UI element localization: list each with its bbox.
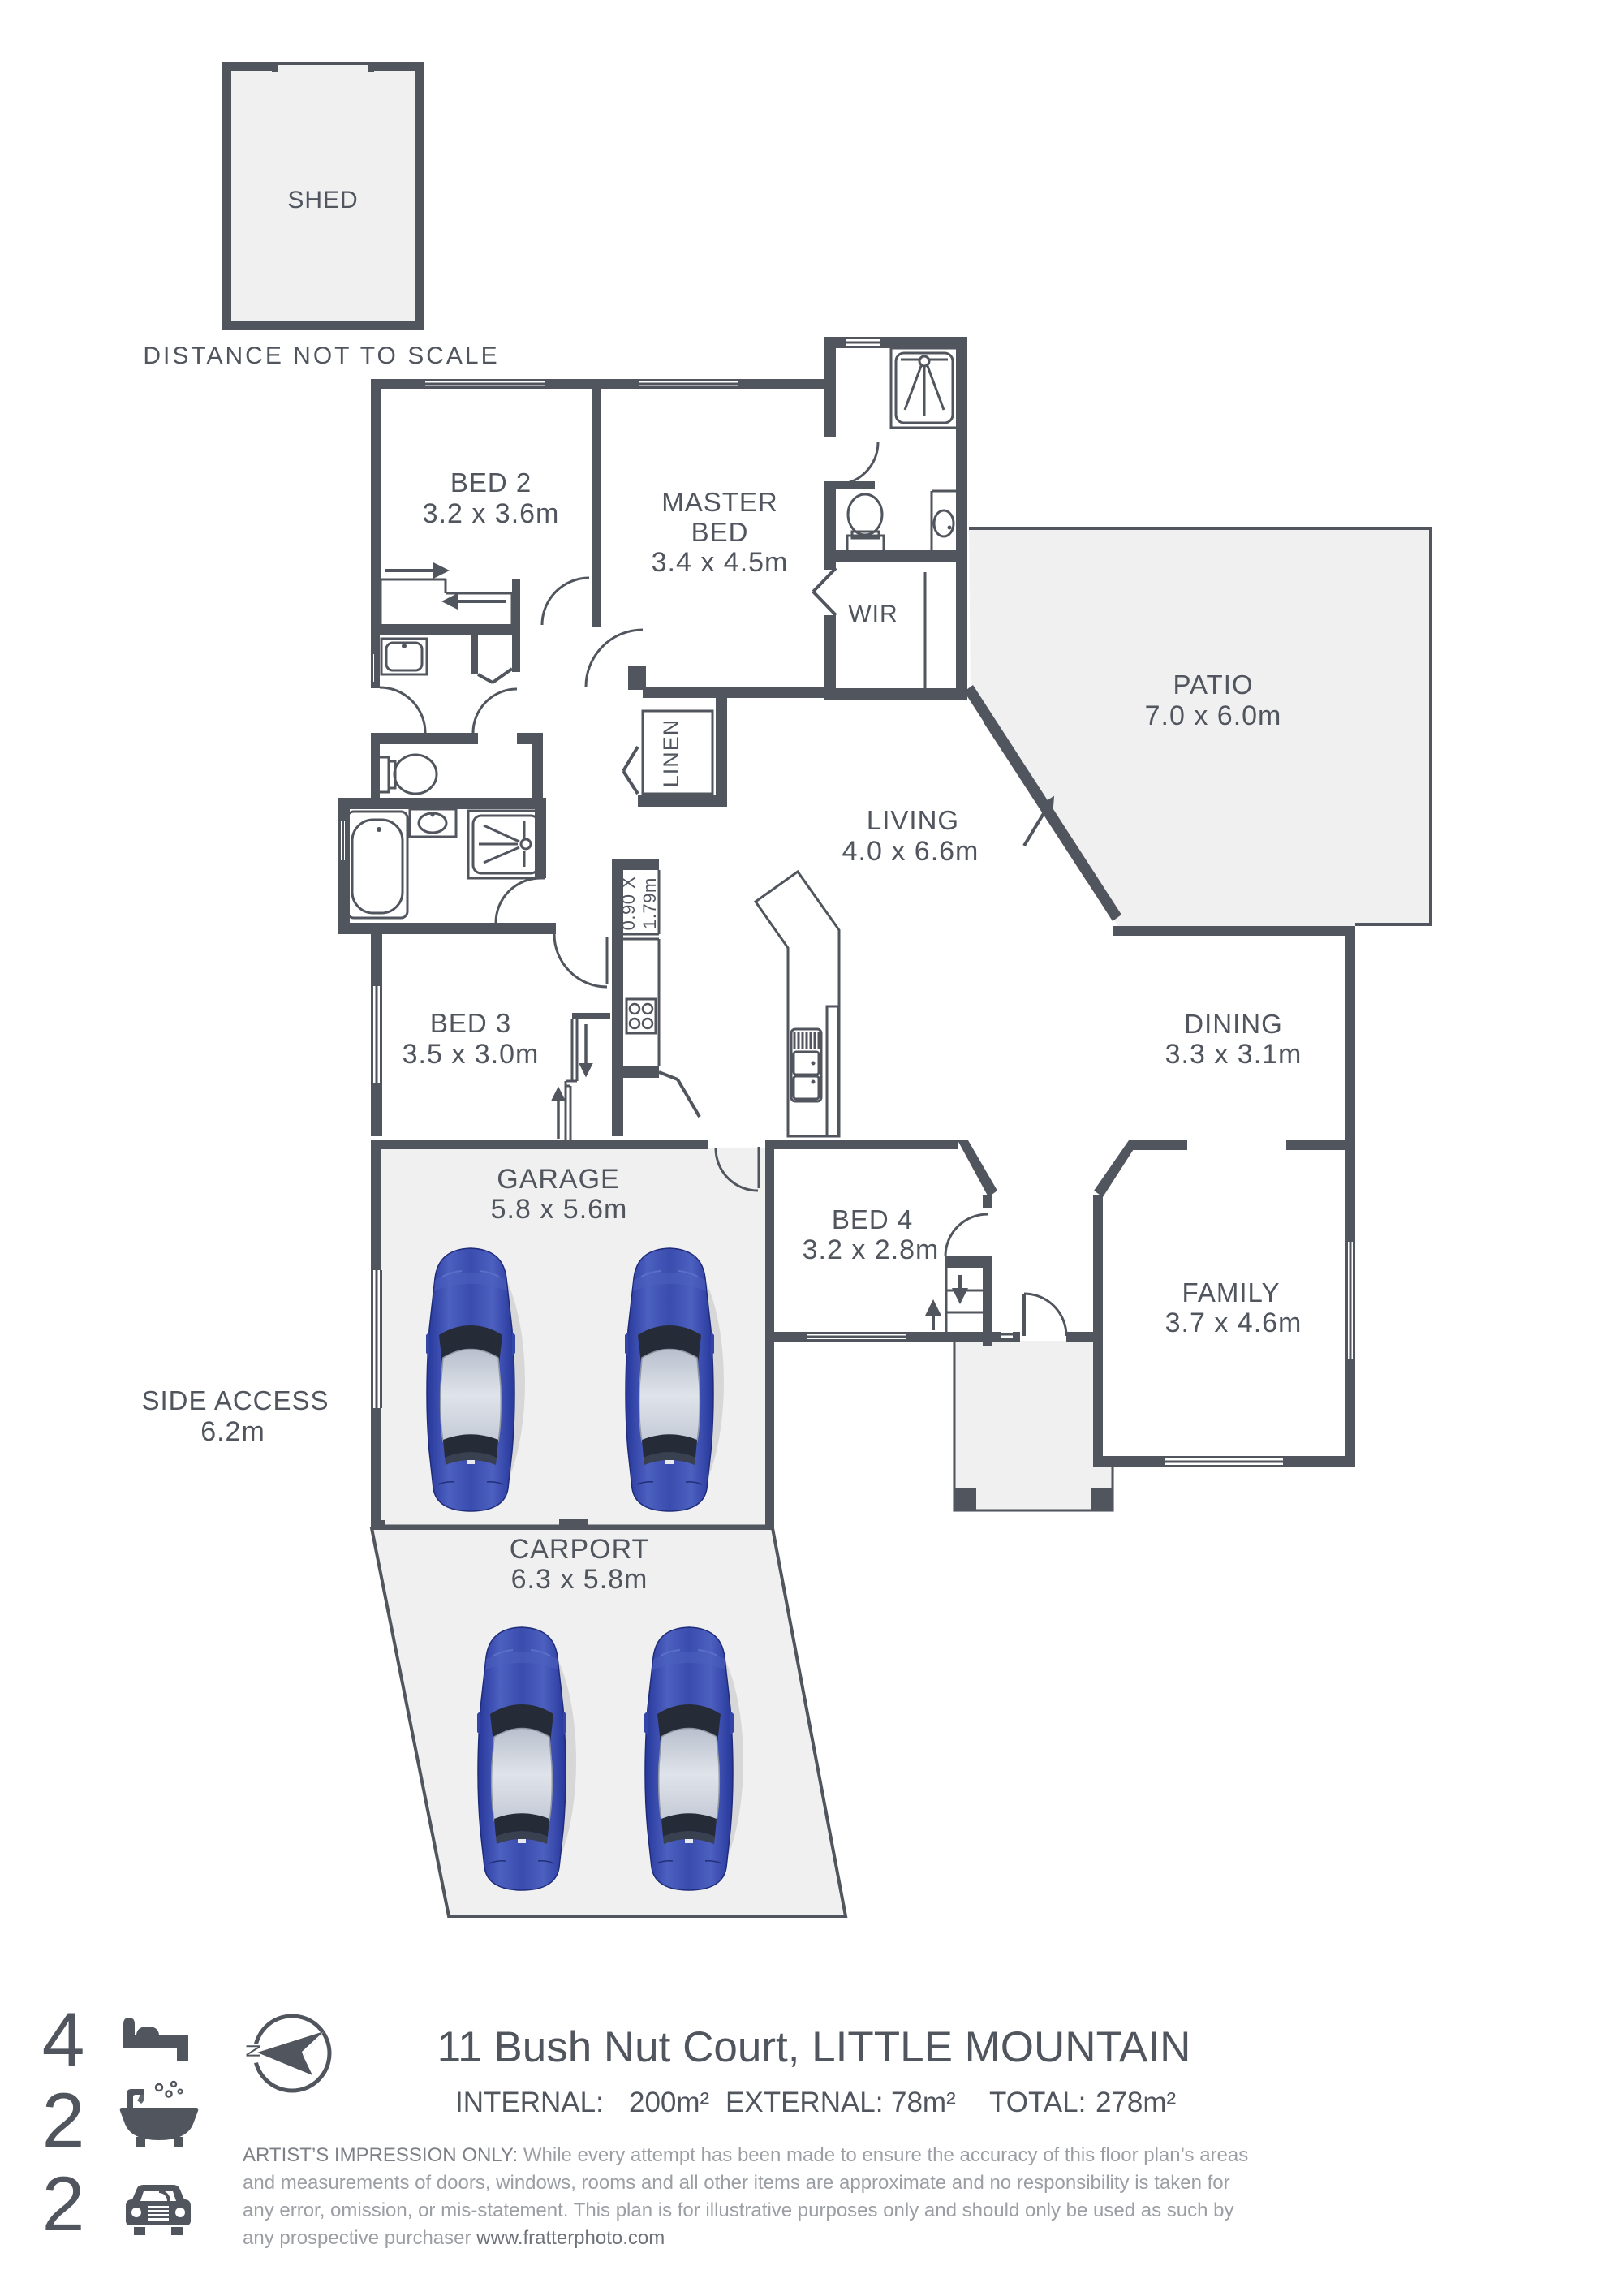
svg-text:SHED: SHED bbox=[287, 187, 358, 213]
svg-text:4: 4 bbox=[42, 1997, 85, 2083]
svg-text:DINING: DINING bbox=[1184, 1009, 1283, 1039]
svg-text:3.2 x 2.8m: 3.2 x 2.8m bbox=[803, 1234, 940, 1265]
svg-text:6.2m: 6.2m bbox=[200, 1416, 265, 1447]
svg-text:3.5 x 3.0m: 3.5 x 3.0m bbox=[403, 1039, 540, 1070]
svg-text:0.90 X: 0.90 X bbox=[618, 877, 639, 931]
svg-text:6.3 x 5.8m: 6.3 x 5.8m bbox=[511, 1564, 648, 1595]
svg-text:BED 3: BED 3 bbox=[430, 1008, 511, 1038]
svg-text:CARPORT: CARPORT bbox=[510, 1534, 650, 1565]
svg-text:7.0 x 6.0m: 7.0 x 6.0m bbox=[1145, 700, 1282, 731]
svg-text:BED 2: BED 2 bbox=[450, 467, 532, 498]
svg-text:MASTER: MASTER bbox=[661, 487, 778, 517]
svg-text:LINEN: LINEN bbox=[659, 719, 683, 788]
svg-text:FAMILY: FAMILY bbox=[1182, 1277, 1281, 1307]
svg-text:278m²: 278m² bbox=[1096, 2087, 1176, 2118]
svg-text:EXTERNAL:: EXTERNAL: bbox=[725, 2087, 884, 2118]
svg-text:11 Bush Nut Court, LITTLE MOUN: 11 Bush Nut Court, LITTLE MOUNTAIN bbox=[437, 2023, 1191, 2071]
svg-text:3.4 x 4.5m: 3.4 x 4.5m bbox=[652, 547, 789, 578]
svg-text:GARAGE: GARAGE bbox=[497, 1164, 619, 1195]
svg-text:PATIO: PATIO bbox=[1173, 670, 1253, 700]
svg-text:and measurements of doors, win: and measurements of doors, windows, room… bbox=[243, 2172, 1230, 2194]
svg-text:WIR: WIR bbox=[848, 601, 898, 627]
svg-text:78m²: 78m² bbox=[891, 2087, 956, 2118]
svg-text:TOTAL:: TOTAL: bbox=[989, 2087, 1086, 2118]
svg-text:ARTIST’S IMPRESSION ONLY: Whil: ARTIST’S IMPRESSION ONLY: While every at… bbox=[243, 2144, 1248, 2166]
svg-text:4.0 x 6.6m: 4.0 x 6.6m bbox=[842, 836, 979, 867]
svg-text:2: 2 bbox=[42, 2161, 85, 2247]
svg-text:5.8 x 5.6m: 5.8 x 5.6m bbox=[491, 1194, 628, 1225]
svg-text:200m²: 200m² bbox=[629, 2087, 709, 2118]
svg-text:INTERNAL:: INTERNAL: bbox=[455, 2087, 604, 2118]
svg-text:2: 2 bbox=[42, 2078, 85, 2164]
svg-text:BED: BED bbox=[691, 517, 749, 547]
svg-text:any prospective purchaser www.: any prospective purchaser www.fratterpho… bbox=[243, 2227, 665, 2249]
svg-text:1.79m: 1.79m bbox=[639, 877, 660, 929]
svg-text:DISTANCE NOT TO SCALE: DISTANCE NOT TO SCALE bbox=[143, 342, 499, 369]
svg-text:3.3 x 3.1m: 3.3 x 3.1m bbox=[1165, 1039, 1302, 1070]
svg-text:N: N bbox=[243, 2044, 265, 2057]
svg-text:SIDE ACCESS: SIDE ACCESS bbox=[141, 1385, 329, 1415]
svg-text:LIVING: LIVING bbox=[867, 805, 959, 835]
svg-text:3.7 x 4.6m: 3.7 x 4.6m bbox=[1165, 1307, 1302, 1338]
svg-text:3.2 x 3.6m: 3.2 x 3.6m bbox=[423, 498, 560, 529]
svg-text:any error, omission, or mis-st: any error, omission, or mis-statement. T… bbox=[243, 2199, 1233, 2221]
svg-text:BED 4: BED 4 bbox=[832, 1204, 913, 1234]
